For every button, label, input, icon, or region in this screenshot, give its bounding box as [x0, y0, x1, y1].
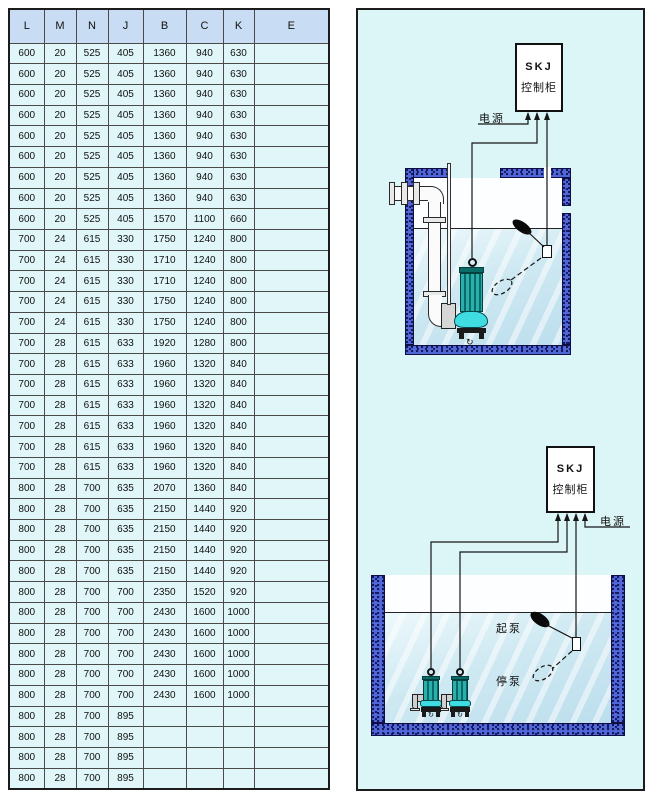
table-cell: 600	[9, 105, 44, 126]
table-cell: 20	[44, 188, 76, 209]
table-cell: 20	[44, 126, 76, 147]
table-cell: 615	[76, 457, 108, 478]
table-cell: 1280	[186, 333, 223, 354]
table-cell: 600	[9, 64, 44, 85]
table-cell: 330	[108, 250, 143, 271]
table-cell: 940	[186, 167, 223, 188]
table-cell	[254, 540, 329, 561]
table-row: 6002052540515701100660	[9, 209, 329, 230]
table-cell: 800	[9, 623, 44, 644]
table-row: 7002861563319601320840	[9, 416, 329, 437]
table-cell: 28	[44, 644, 76, 665]
table-cell: 615	[76, 375, 108, 396]
table-cell: 28	[44, 457, 76, 478]
table-cell: 615	[76, 333, 108, 354]
table-cell	[254, 312, 329, 333]
table-cell: 700	[108, 582, 143, 603]
table-row: 80028700700243016001000	[9, 602, 329, 623]
table-cell: 28	[44, 333, 76, 354]
table-cell: 800	[9, 665, 44, 686]
table-cell: 20	[44, 43, 76, 64]
table-cell: 28	[44, 395, 76, 416]
table-row: 8002870063521501440920	[9, 540, 329, 561]
table-cell: 28	[44, 665, 76, 686]
table-cell: 940	[186, 43, 223, 64]
table-cell: 2150	[143, 540, 186, 561]
table-cell: 840	[223, 478, 254, 499]
table-cell: 28	[44, 747, 76, 768]
column-header-C: C	[186, 9, 223, 43]
table-cell: 24	[44, 271, 76, 292]
table-cell: 615	[76, 271, 108, 292]
table-cell	[254, 644, 329, 665]
table-cell: 525	[76, 84, 108, 105]
table-cell: 700	[76, 747, 108, 768]
table-row: 600205254051360940630	[9, 188, 329, 209]
table-cell	[254, 147, 329, 168]
table-cell: 28	[44, 623, 76, 644]
table-cell	[254, 520, 329, 541]
table-cell: 700	[76, 665, 108, 686]
table-cell	[143, 706, 186, 727]
table-cell: 700	[9, 292, 44, 313]
table-cell: 1320	[186, 457, 223, 478]
table-cell: 1520	[186, 582, 223, 603]
table-cell: 20	[44, 105, 76, 126]
table-cell: 840	[223, 354, 254, 375]
table-cell: 940	[186, 147, 223, 168]
table-cell: 600	[9, 209, 44, 230]
column-header-B: B	[143, 9, 186, 43]
table-cell: 895	[108, 747, 143, 768]
table-cell: 1320	[186, 395, 223, 416]
table-cell: 525	[76, 126, 108, 147]
table-row: 600205254051360940630	[9, 84, 329, 105]
table-cell: 895	[108, 727, 143, 748]
table-row: 8002870063521501440920	[9, 520, 329, 541]
table-header-row: L M N J B C K E	[9, 9, 329, 43]
table-cell: 525	[76, 64, 108, 85]
table-cell: 800	[9, 706, 44, 727]
table-cell: 1240	[186, 292, 223, 313]
table-cell: 20	[44, 147, 76, 168]
table-cell: 800	[9, 561, 44, 582]
table-cell: 1960	[143, 437, 186, 458]
table-cell: 920	[223, 520, 254, 541]
table-cell: 700	[76, 520, 108, 541]
column-header-M: M	[44, 9, 76, 43]
table-row: 600205254051360940630	[9, 43, 329, 64]
table-cell: 28	[44, 437, 76, 458]
table-cell: 405	[108, 126, 143, 147]
float-cable-bottom	[573, 513, 579, 637]
table-cell: 1360	[186, 478, 223, 499]
table-cell: 800	[9, 685, 44, 706]
table-cell: 2350	[143, 582, 186, 603]
table-cell: 1320	[186, 416, 223, 437]
table-cell: 28	[44, 768, 76, 789]
table-cell: 635	[108, 561, 143, 582]
table-cell	[254, 292, 329, 313]
table-cell: 700	[76, 561, 108, 582]
table-cell: 940	[186, 84, 223, 105]
column-header-J: J	[108, 9, 143, 43]
table-cell: 405	[108, 43, 143, 64]
table-row: 7002861563319601320840	[9, 437, 329, 458]
table-cell: 800	[9, 499, 44, 520]
column-header-K: K	[223, 9, 254, 43]
table-cell: 630	[223, 167, 254, 188]
table-row: 80028700895	[9, 768, 329, 789]
table-cell: 20	[44, 64, 76, 85]
table-cell: 20	[44, 84, 76, 105]
power-label-top: 电源	[479, 110, 505, 126]
table-cell: 700	[108, 685, 143, 706]
table-cell: 28	[44, 354, 76, 375]
table-cell	[143, 768, 186, 789]
column-header-L: L	[9, 9, 44, 43]
table-cell: 405	[108, 64, 143, 85]
table-cell: 1360	[143, 188, 186, 209]
table-cell	[254, 706, 329, 727]
table-cell: 330	[108, 312, 143, 333]
table-cell: 1360	[143, 84, 186, 105]
table-cell: 630	[223, 105, 254, 126]
table-cell: 28	[44, 727, 76, 748]
table-cell	[254, 271, 329, 292]
table-cell	[186, 768, 223, 789]
table-cell: 28	[44, 520, 76, 541]
table-row: 80028700700243016001000	[9, 665, 329, 686]
table-cell: 940	[186, 126, 223, 147]
table-cell: 1360	[143, 105, 186, 126]
table-cell: 525	[76, 43, 108, 64]
table-cell: 330	[108, 292, 143, 313]
table-cell: 28	[44, 499, 76, 520]
table-cell	[254, 478, 329, 499]
table-cell: 1360	[143, 167, 186, 188]
table-cell: 525	[76, 209, 108, 230]
table-cell: 2430	[143, 665, 186, 686]
table-cell: 700	[76, 478, 108, 499]
table-row: 8002870063520701360840	[9, 478, 329, 499]
table-cell	[254, 747, 329, 768]
table-row: 80028700700243016001000	[9, 623, 329, 644]
table-cell: 1600	[186, 665, 223, 686]
table-cell	[254, 437, 329, 458]
table-cell: 700	[108, 665, 143, 686]
table-cell: 630	[223, 43, 254, 64]
table-cell: 800	[9, 478, 44, 499]
table-body: 6002052540513609406306002052540513609406…	[9, 43, 329, 789]
table-cell: 1750	[143, 312, 186, 333]
table-cell: 840	[223, 437, 254, 458]
table-row: 7002861563319601320840	[9, 354, 329, 375]
table-cell: 600	[9, 167, 44, 188]
table-cell: 700	[9, 437, 44, 458]
table-cell: 1600	[186, 644, 223, 665]
table-cell: 800	[9, 727, 44, 748]
table-cell: 28	[44, 582, 76, 603]
table-cell: 525	[76, 105, 108, 126]
float-switch-stop-top	[489, 276, 514, 298]
table-cell: 800	[223, 333, 254, 354]
table-cell: 1440	[186, 561, 223, 582]
table-row: 80028700895	[9, 727, 329, 748]
table-cell: 800	[9, 768, 44, 789]
table-cell: 1360	[143, 43, 186, 64]
table-cell: 800	[223, 312, 254, 333]
table-cell	[254, 499, 329, 520]
start-pump-label: 起泵	[496, 620, 522, 636]
table-row: 7002861563319601320840	[9, 457, 329, 478]
table-cell	[254, 64, 329, 85]
table-cell: 1960	[143, 354, 186, 375]
table-cell	[254, 43, 329, 64]
table-cell: 405	[108, 105, 143, 126]
pump2-cable-bottom	[460, 513, 570, 668]
table-cell: 28	[44, 375, 76, 396]
table-cell: 800	[9, 582, 44, 603]
table-cell: 940	[186, 188, 223, 209]
table-cell: 840	[223, 395, 254, 416]
table-cell: 24	[44, 312, 76, 333]
table-cell: 800	[223, 271, 254, 292]
dimension-spec-table: L M N J B C K E 600205254051360940630600…	[8, 8, 330, 790]
table-cell: 2430	[143, 623, 186, 644]
table-cell: 800	[9, 520, 44, 541]
table-cell	[254, 685, 329, 706]
table-cell: 800	[9, 644, 44, 665]
table-cell: 1000	[223, 665, 254, 686]
table-cell: 700	[9, 229, 44, 250]
table-cell: 630	[223, 147, 254, 168]
table-cell	[254, 665, 329, 686]
table-cell: 920	[223, 582, 254, 603]
table-cell: 28	[44, 416, 76, 437]
table-cell: 1960	[143, 457, 186, 478]
table-cell: 24	[44, 292, 76, 313]
table-cell: 1100	[186, 209, 223, 230]
table-cell	[254, 250, 329, 271]
table-cell: 1000	[223, 623, 254, 644]
table-cell	[186, 747, 223, 768]
table-cell: 700	[76, 644, 108, 665]
table-cell: 615	[76, 395, 108, 416]
table-cell: 700	[9, 354, 44, 375]
table-cell: 1000	[223, 685, 254, 706]
table-row: 7002461533017501240800	[9, 312, 329, 333]
table-cell: 615	[76, 437, 108, 458]
table-cell	[254, 84, 329, 105]
table-cell: 700	[76, 602, 108, 623]
float-linkage-top	[489, 231, 544, 298]
table-row: 80028700700243016001000	[9, 685, 329, 706]
table-row: 80028700895	[9, 706, 329, 727]
table-row: 7002861563319601320840	[9, 395, 329, 416]
table-cell: 635	[108, 520, 143, 541]
table-row: 80028700700243016001000	[9, 644, 329, 665]
table-cell: 615	[76, 312, 108, 333]
table-cell: 2150	[143, 520, 186, 541]
table-cell	[254, 375, 329, 396]
table-cell: 940	[186, 64, 223, 85]
table-cell: 633	[108, 333, 143, 354]
table-cell: 700	[9, 395, 44, 416]
table-cell	[223, 706, 254, 727]
table-row: 7002461533017501240800	[9, 229, 329, 250]
table-row: 7002461533017101240800	[9, 250, 329, 271]
table-cell: 330	[108, 229, 143, 250]
table-cell: 600	[9, 188, 44, 209]
table-cell	[254, 229, 329, 250]
table-cell: 700	[76, 540, 108, 561]
table-cell: 633	[108, 395, 143, 416]
table-cell	[254, 582, 329, 603]
pump1-cable-bottom	[431, 513, 561, 668]
table-cell: 1600	[186, 602, 223, 623]
table-cell: 600	[9, 43, 44, 64]
table-cell: 1240	[186, 250, 223, 271]
table-cell: 20	[44, 167, 76, 188]
table-cell: 1750	[143, 292, 186, 313]
table-cell: 2150	[143, 499, 186, 520]
table-cell: 800	[223, 229, 254, 250]
table-cell: 1750	[143, 229, 186, 250]
table-cell: 630	[223, 126, 254, 147]
table-cell: 2430	[143, 644, 186, 665]
table-cell: 1960	[143, 395, 186, 416]
table-row: 7002461533017501240800	[9, 292, 329, 313]
table-cell	[254, 126, 329, 147]
table-cell: 700	[76, 499, 108, 520]
table-cell: 920	[223, 540, 254, 561]
table-cell: 1440	[186, 499, 223, 520]
table-cell: 700	[9, 250, 44, 271]
table-cell: 1440	[186, 520, 223, 541]
table-cell: 700	[108, 623, 143, 644]
float-linkage-bottom	[530, 624, 572, 684]
table-cell	[254, 188, 329, 209]
table-row: 8002870063521501440920	[9, 499, 329, 520]
table-cell: 1570	[143, 209, 186, 230]
table-cell: 630	[223, 84, 254, 105]
stop-pump-label: 停泵	[496, 673, 522, 689]
table-cell: 633	[108, 416, 143, 437]
table-cell: 700	[9, 271, 44, 292]
table-cell	[254, 768, 329, 789]
table-cell: 700	[9, 416, 44, 437]
table-cell: 920	[223, 561, 254, 582]
table-cell: 1240	[186, 312, 223, 333]
table-cell: 800	[223, 250, 254, 271]
table-cell: 28	[44, 478, 76, 499]
table-cell: 700	[76, 623, 108, 644]
table-cell: 1360	[143, 147, 186, 168]
table-row: 600205254051360940630	[9, 167, 329, 188]
table-row: 8002870063521501440920	[9, 561, 329, 582]
table-cell	[254, 105, 329, 126]
table-cell	[143, 727, 186, 748]
table-cell	[186, 706, 223, 727]
table-cell: 800	[223, 292, 254, 313]
table-cell: 635	[108, 478, 143, 499]
installation-diagram-panel: SKJ 控制柜 电源 ↻	[356, 8, 645, 791]
table-cell	[254, 602, 329, 623]
table-cell: 800	[9, 602, 44, 623]
table-cell: 800	[9, 540, 44, 561]
column-header-N: N	[76, 9, 108, 43]
table-cell: 28	[44, 561, 76, 582]
column-header-E: E	[254, 9, 329, 43]
table-cell: 1320	[186, 354, 223, 375]
table-cell: 600	[9, 84, 44, 105]
table-row: 7002461533017101240800	[9, 271, 329, 292]
table-cell: 1920	[143, 333, 186, 354]
table-cell: 28	[44, 540, 76, 561]
table-cell: 700	[76, 685, 108, 706]
table-cell: 895	[108, 706, 143, 727]
table-cell: 1320	[186, 375, 223, 396]
table-cell: 700	[76, 706, 108, 727]
table-row: 600205254051360940630	[9, 105, 329, 126]
table-cell: 2430	[143, 685, 186, 706]
table-cell: 700	[108, 644, 143, 665]
table-cell: 405	[108, 147, 143, 168]
table-cell: 1710	[143, 271, 186, 292]
table-cell: 600	[9, 126, 44, 147]
table-cell: 840	[223, 375, 254, 396]
table-cell: 525	[76, 167, 108, 188]
table-row: 7002861563319201280800	[9, 333, 329, 354]
table-cell: 630	[223, 188, 254, 209]
table-cell	[254, 209, 329, 230]
pump-cable-top	[472, 112, 540, 258]
float-switch-stop-bottom	[530, 662, 555, 684]
table-cell: 525	[76, 188, 108, 209]
table-cell: 405	[108, 84, 143, 105]
table-row: 600205254051360940630	[9, 147, 329, 168]
table-cell	[143, 747, 186, 768]
table-cell	[254, 333, 329, 354]
table-cell: 1000	[223, 644, 254, 665]
table-cell: 660	[223, 209, 254, 230]
table-row: 600205254051360940630	[9, 126, 329, 147]
table-cell	[223, 727, 254, 748]
table-cell: 615	[76, 292, 108, 313]
table-cell	[186, 727, 223, 748]
table-cell: 2070	[143, 478, 186, 499]
table-cell: 940	[186, 105, 223, 126]
table-cell	[223, 768, 254, 789]
table-cell: 20	[44, 209, 76, 230]
table-cell	[254, 623, 329, 644]
table-cell	[254, 395, 329, 416]
table-cell: 28	[44, 685, 76, 706]
table-cell: 1600	[186, 623, 223, 644]
table-cell: 700	[9, 312, 44, 333]
table-cell: 633	[108, 437, 143, 458]
table-cell: 1710	[143, 250, 186, 271]
table-cell	[223, 747, 254, 768]
table-cell: 1240	[186, 229, 223, 250]
table-cell: 1600	[186, 685, 223, 706]
table-cell	[254, 167, 329, 188]
table-cell: 635	[108, 499, 143, 520]
table-cell: 1440	[186, 540, 223, 561]
table-cell: 895	[108, 768, 143, 789]
table-cell: 1360	[143, 126, 186, 147]
